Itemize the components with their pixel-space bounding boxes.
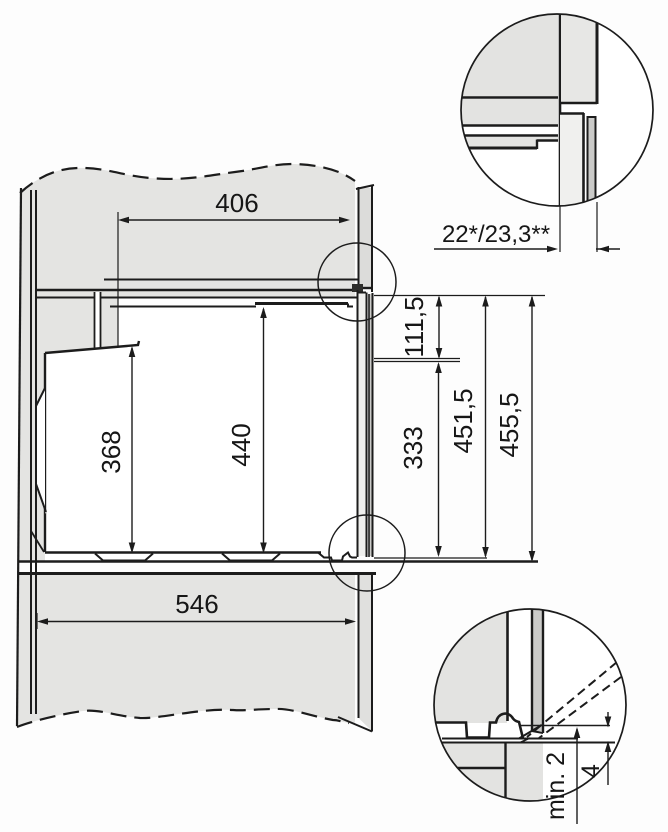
dim-546-label: 546 — [175, 589, 218, 619]
dim-min-2-label: min. 2 — [542, 752, 570, 820]
dim-406-label: 406 — [215, 188, 258, 218]
dim-111-5-arrow-bottom — [436, 348, 443, 359]
dim-451-5: 451,5 — [448, 296, 489, 559]
dim-333-arrow-top — [435, 362, 442, 373]
d1-cabinet-body — [450, 10, 558, 98]
cabinet-upper-body — [20, 164, 355, 297]
dim-368-label: 368 — [96, 430, 126, 473]
dim-333-arrow-bottom — [435, 546, 442, 557]
dim-455-5-label: 455,5 — [494, 392, 524, 457]
dim-451-5-arrow-top — [482, 296, 489, 307]
dim-22-arrow-right — [598, 246, 609, 253]
d2-shelf-board — [432, 744, 543, 806]
dim-333-label: 333 — [398, 426, 428, 469]
d1-frame-strip — [560, 114, 583, 206]
d1-front-panel — [561, 12, 597, 103]
dim-455-5: 455,5 — [494, 296, 535, 563]
dim-22-23-3: 22*/23,3** — [434, 202, 620, 252]
dim-440-label: 440 — [226, 423, 256, 466]
front-panel-lower — [359, 575, 372, 731]
dim-451-5-label: 451,5 — [448, 388, 478, 453]
installation-diagram-page: 406 546 440 368 111,5 333 — [0, 0, 668, 832]
dim-111-5: 111,5 — [399, 296, 442, 360]
d2-door-strip — [533, 606, 543, 731]
detail-view-top — [440, 10, 653, 208]
dim-22-label: 22*/23,3** — [442, 221, 550, 248]
dim-111-5-arrow-top — [436, 296, 443, 307]
dim-451-5-arrow-bottom — [482, 547, 489, 558]
niche-back-panel — [95, 292, 100, 348]
dim-111-5-label: 111,5 — [399, 296, 429, 357]
cabinet-section — [17, 164, 358, 727]
dim-333: 333 — [398, 362, 442, 557]
dim-4-label: 4 — [577, 764, 605, 778]
dim-455-5-arrow-top — [529, 296, 536, 307]
d1-door-edge-strip — [588, 117, 596, 205]
technical-drawing: 406 546 440 368 111,5 333 — [0, 0, 668, 832]
front-panel-upper — [359, 188, 372, 288]
d1-shelf-board — [450, 99, 558, 125]
